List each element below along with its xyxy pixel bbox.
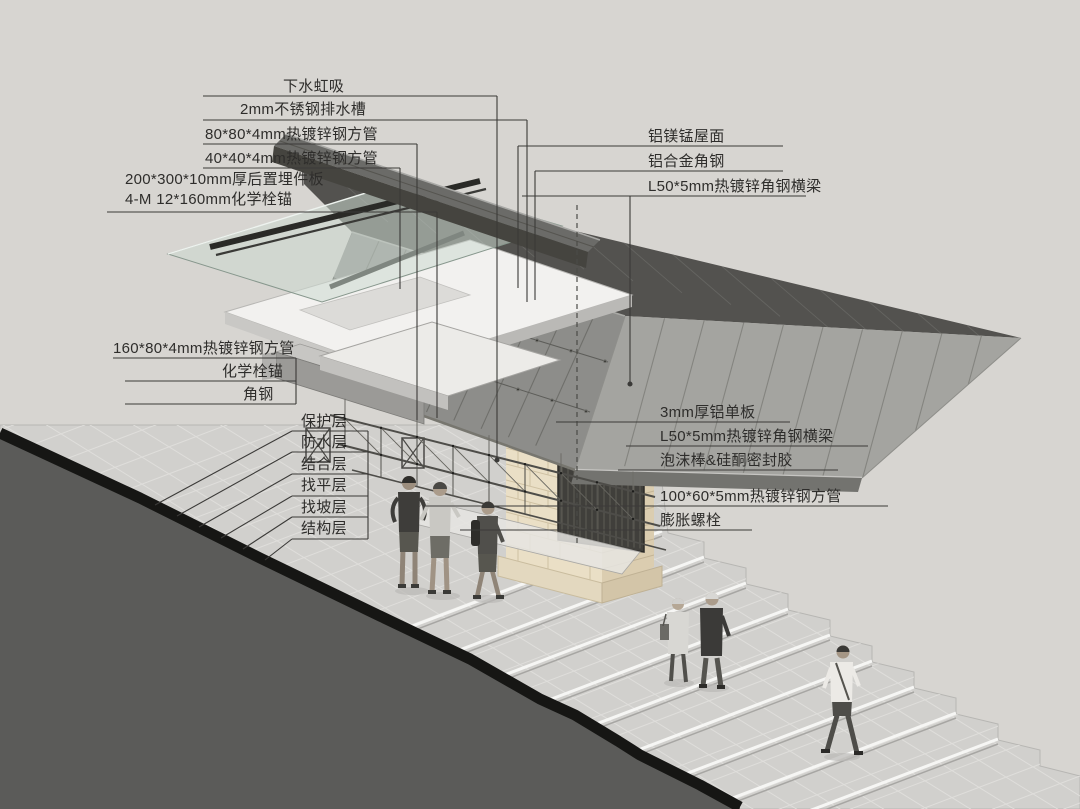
- callout-80-square-tube: 80*80*4mm热镀锌钢方管: [205, 126, 378, 144]
- callout-40-square-tube: 40*40*4mm热镀锌钢方管: [205, 150, 378, 168]
- callout-chemical-anchor-4m: 4-M 12*160mm化学栓锚: [125, 191, 292, 209]
- callout-chemical-anchor: 化学栓锚: [222, 363, 283, 381]
- callout-l50-beam-top: L50*5mm热镀锌角钢横梁: [648, 178, 821, 196]
- callout-angle-steel: 角钢: [243, 386, 274, 404]
- callout-3mm-aluminum-panel: 3mm厚铝单板: [660, 404, 755, 422]
- callout-aluminum-angle: 铝合金角钢: [648, 153, 725, 171]
- callout-structure-layer: 结构层: [301, 520, 347, 538]
- callout-l50-beam-mid: L50*5mm热镀锌角钢横梁: [660, 428, 833, 446]
- callout-160-square-tube: 160*80*4mm热镀锌钢方管: [113, 340, 295, 358]
- callout-protection-layer: 保护层: [301, 413, 347, 431]
- callout-stainless-gutter: 2mm不锈钢排水槽: [240, 101, 366, 119]
- callout-embed-plate: 200*300*10mm厚后置埋件板: [125, 171, 324, 189]
- callout-bonding-layer: 结合层: [301, 456, 347, 474]
- callout-foam-sealant: 泡沫棒&硅酮密封胶: [660, 452, 793, 470]
- callout-leveling-layer: 找平层: [301, 477, 347, 495]
- callout-waterproof-layer: 防水层: [301, 434, 347, 452]
- callout-al-mg-mn-roof: 铝镁锰屋面: [648, 128, 725, 146]
- architectural-detail-drawing: 下水虹吸 2mm不锈钢排水槽 80*80*4mm热镀锌钢方管 40*40*4mm…: [0, 0, 1080, 809]
- callout-siphon-drain: 下水虹吸: [283, 78, 344, 96]
- callout-expansion-bolt: 膨胀螺栓: [660, 512, 721, 530]
- callout-slope-layer: 找坡层: [301, 499, 347, 517]
- callout-100-60-tube: 100*60*5mm热镀锌钢方管: [660, 488, 842, 506]
- scene-drawing: [0, 0, 1080, 809]
